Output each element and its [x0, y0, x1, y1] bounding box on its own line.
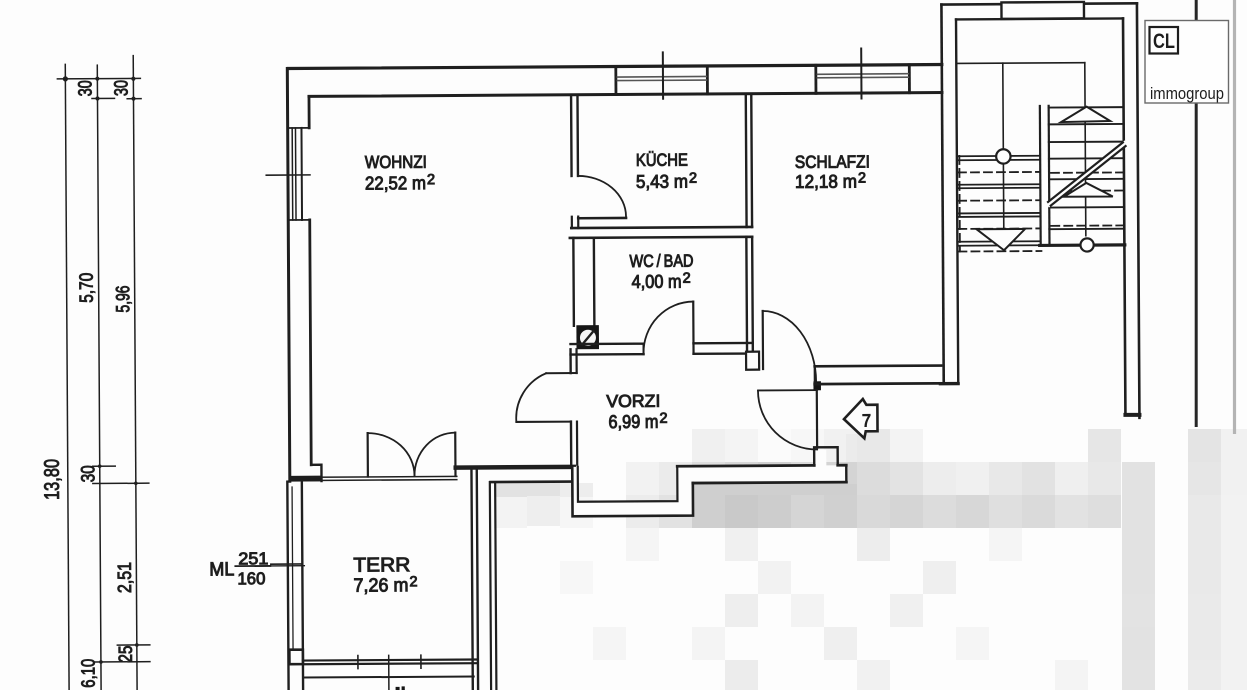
svg-text:2,51: 2,51: [115, 562, 136, 593]
svg-text:immogroup: immogroup: [1150, 85, 1224, 103]
svg-text:2: 2: [659, 411, 667, 427]
svg-text:5,43 m: 5,43 m: [636, 171, 688, 192]
svg-text:5,70: 5,70: [77, 273, 98, 303]
svg-text:KÜCHE: KÜCHE: [636, 150, 688, 170]
svg-text:2: 2: [409, 574, 417, 590]
svg-text:CL: CL: [1153, 30, 1175, 53]
svg-text:WOHNZI: WOHNZI: [365, 152, 427, 172]
svg-text:13,80: 13,80: [41, 459, 64, 500]
svg-text:VORZI: VORZI: [606, 391, 660, 411]
svg-text:2: 2: [427, 172, 435, 188]
svg-text:30: 30: [75, 80, 96, 96]
svg-text:2: 2: [683, 271, 691, 287]
svg-text:TERR: TERR: [353, 554, 410, 576]
svg-text:5,96: 5,96: [113, 285, 134, 312]
svg-text:ML: ML: [209, 559, 234, 580]
svg-text:7: 7: [862, 410, 871, 430]
svg-text:30: 30: [78, 465, 99, 482]
svg-text:6,10: 6,10: [78, 659, 99, 688]
svg-text:2: 2: [858, 170, 866, 186]
svg-text:160: 160: [237, 569, 265, 588]
svg-text:SCHLAFZI: SCHLAFZI: [795, 151, 870, 171]
svg-text:22,52 m: 22,52 m: [365, 172, 426, 193]
svg-text:12,18 m: 12,18 m: [795, 171, 857, 192]
svg-text:7,26 m: 7,26 m: [353, 575, 408, 596]
svg-text:25: 25: [116, 645, 137, 662]
svg-text:4,00 m: 4,00 m: [632, 271, 682, 292]
svg-text:WC / BAD: WC / BAD: [629, 251, 693, 271]
svg-text:6,99 m: 6,99 m: [608, 411, 658, 432]
svg-text:30: 30: [111, 80, 132, 96]
svg-text:2: 2: [689, 171, 697, 187]
